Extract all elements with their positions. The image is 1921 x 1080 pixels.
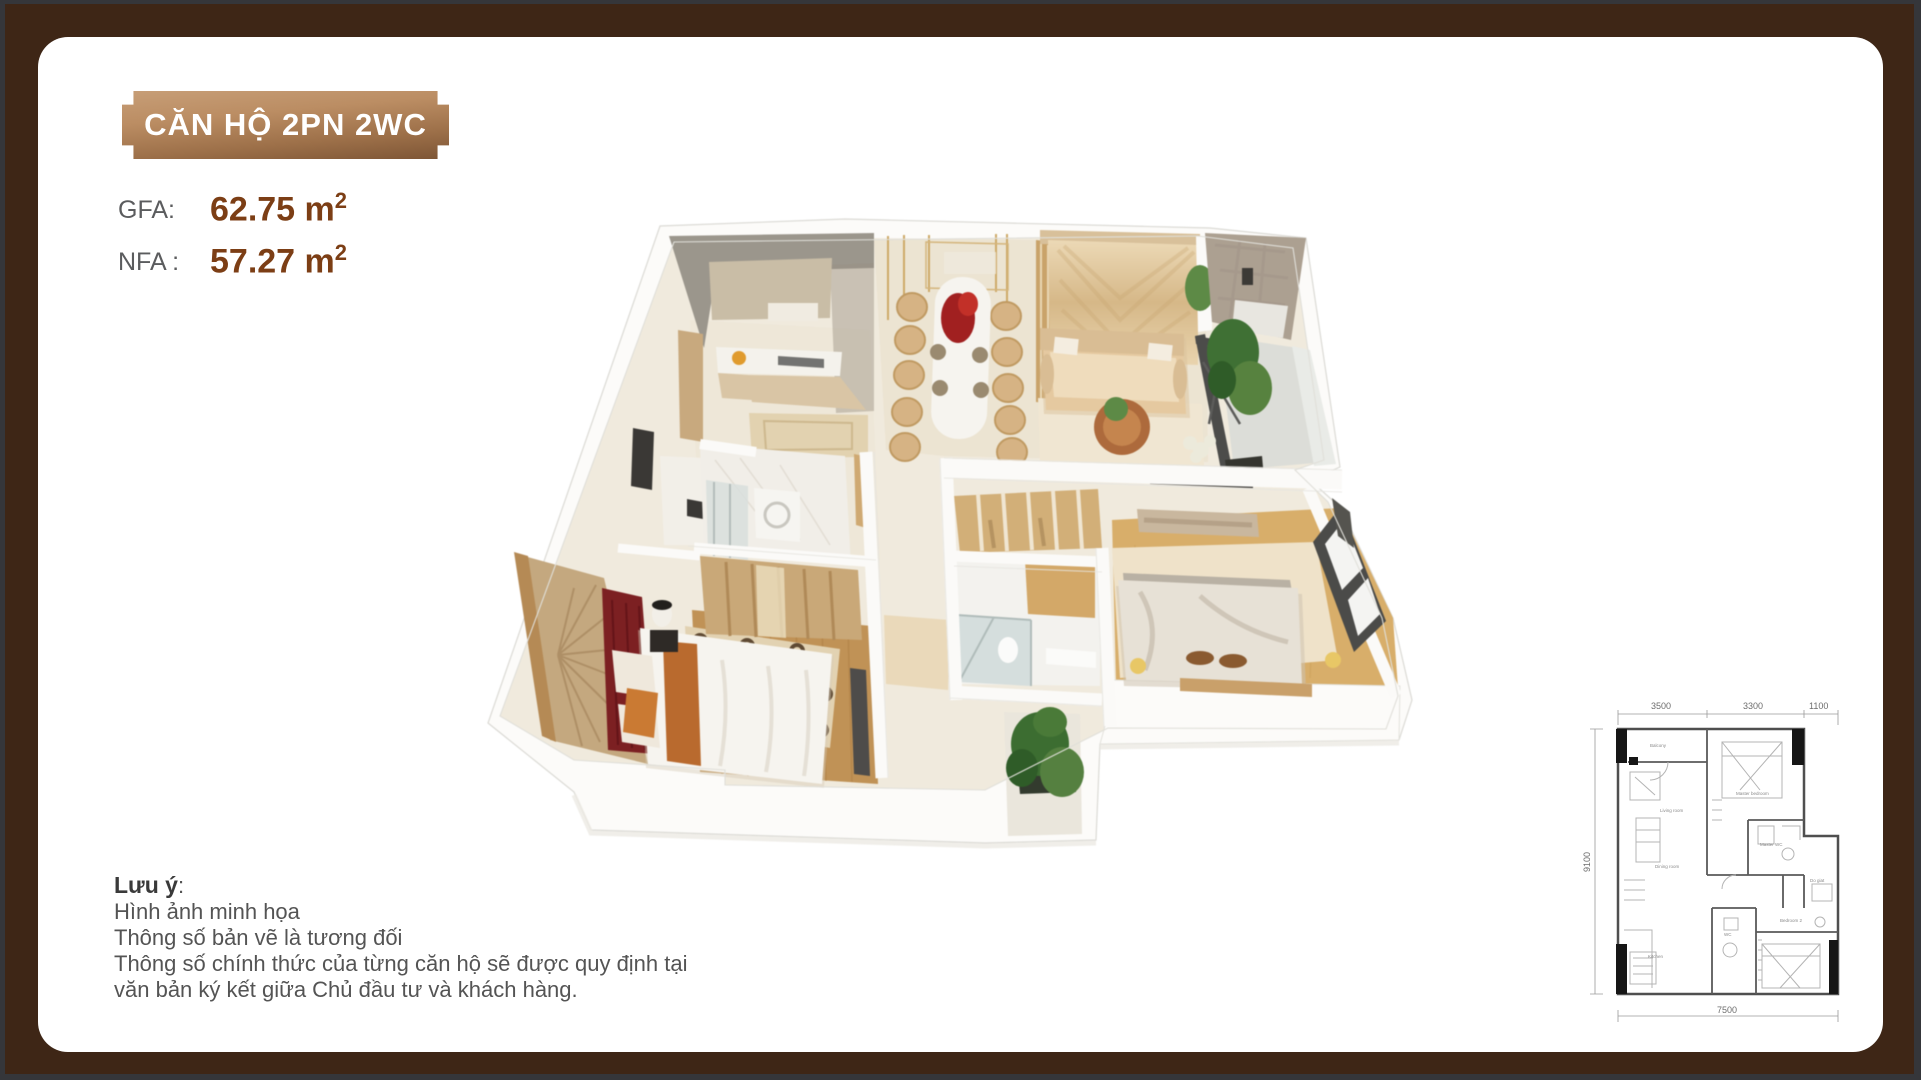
- svg-text:Living room: Living room: [1660, 808, 1684, 813]
- svg-text:Bedroom 2: Bedroom 2: [1780, 918, 1803, 923]
- svg-text:1100: 1100: [1809, 701, 1828, 711]
- svg-text:3300: 3300: [1743, 701, 1763, 711]
- svg-text:Do giat: Do giat: [1810, 878, 1825, 883]
- svg-text:Kitchen: Kitchen: [1648, 954, 1664, 959]
- svg-text:3500: 3500: [1651, 701, 1671, 711]
- svg-text:WC: WC: [1724, 932, 1732, 937]
- svg-text:9100: 9100: [1582, 852, 1592, 872]
- svg-text:Master bedroom: Master bedroom: [1736, 791, 1769, 796]
- svg-text:Dining room: Dining room: [1655, 864, 1680, 869]
- svg-text:Master WC: Master WC: [1760, 842, 1783, 847]
- svg-text:7500: 7500: [1717, 1005, 1737, 1015]
- svg-text:Balcony: Balcony: [1650, 743, 1667, 748]
